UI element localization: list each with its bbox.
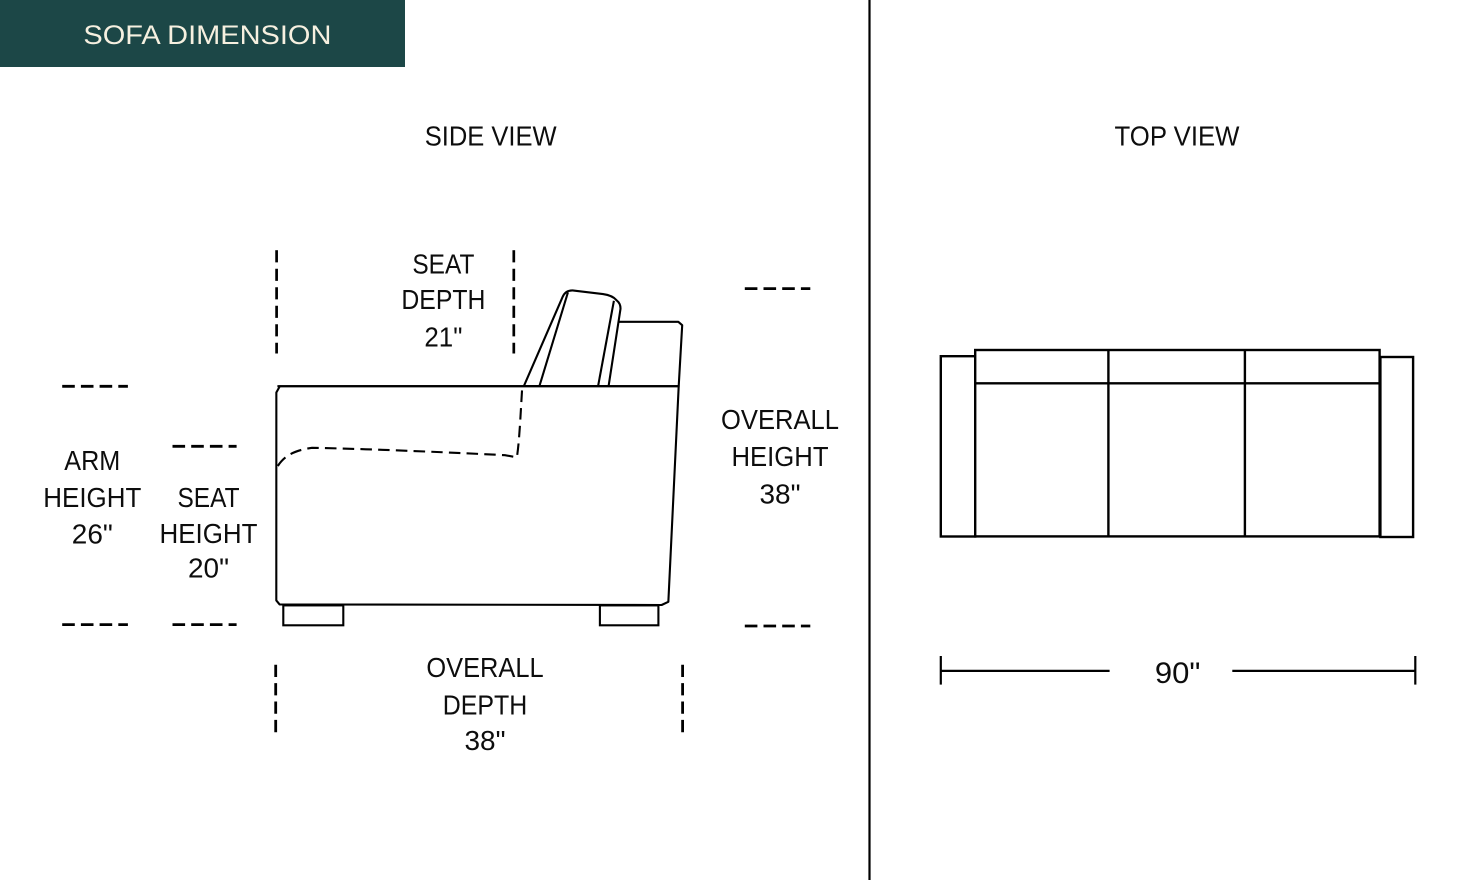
svg-text:HEIGHT: HEIGHT (160, 518, 258, 549)
svg-text:SIDE VIEW: SIDE VIEW (425, 121, 557, 152)
svg-text:SEAT: SEAT (178, 482, 240, 513)
svg-text:38": 38" (465, 725, 506, 756)
svg-text:DEPTH: DEPTH (443, 689, 528, 720)
svg-text:21": 21" (424, 321, 462, 352)
svg-text:TOP VIEW: TOP VIEW (1115, 121, 1240, 152)
svg-text:20": 20" (188, 552, 229, 583)
svg-text:SEAT: SEAT (412, 249, 474, 280)
svg-text:OVERALL: OVERALL (721, 404, 839, 435)
svg-text:SOFA DIMENSION: SOFA DIMENSION (83, 20, 331, 50)
svg-text:HEIGHT: HEIGHT (43, 482, 141, 513)
svg-text:38": 38" (760, 479, 801, 510)
svg-text:HEIGHT: HEIGHT (732, 441, 829, 472)
svg-text:DEPTH: DEPTH (401, 284, 485, 315)
svg-text:26": 26" (72, 519, 113, 550)
svg-text:90": 90" (1155, 657, 1201, 690)
svg-text:OVERALL: OVERALL (426, 652, 543, 683)
svg-text:ARM: ARM (64, 445, 120, 476)
